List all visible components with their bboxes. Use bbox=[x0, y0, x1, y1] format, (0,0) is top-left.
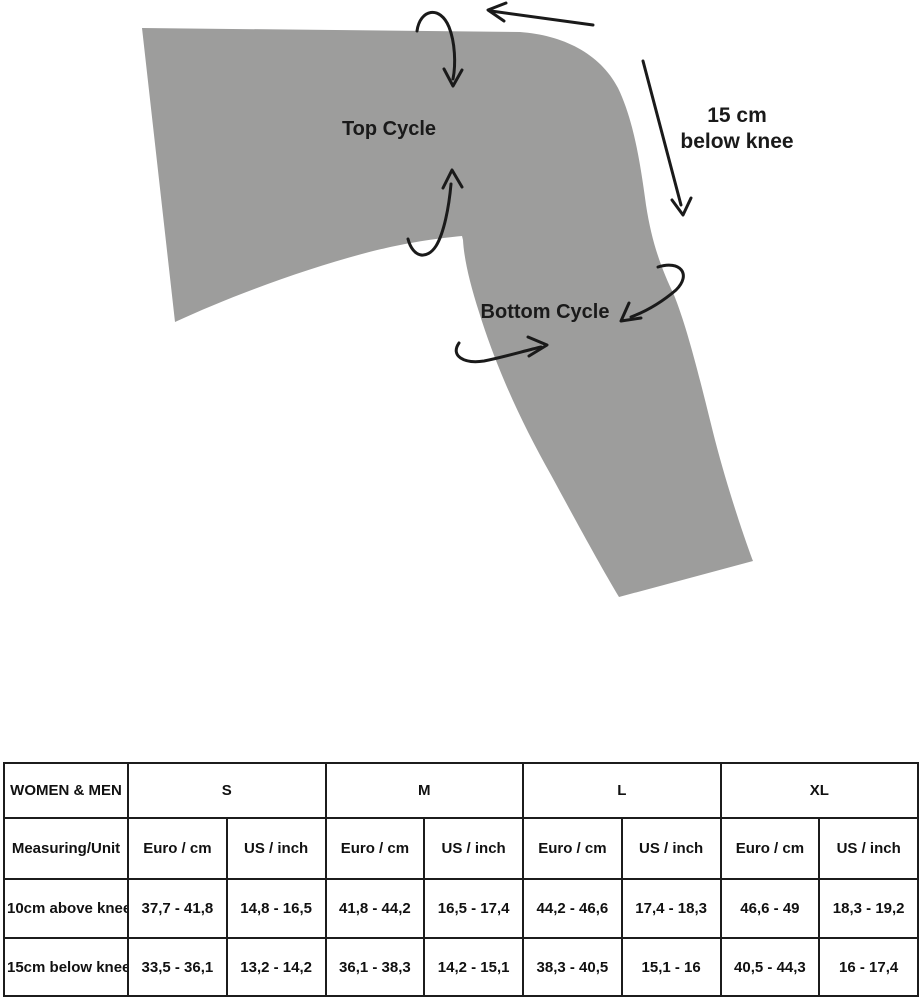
unit-cell-euro-cm: Euro / cm bbox=[128, 818, 227, 879]
value-cell: 16,5 - 17,4 bbox=[424, 879, 523, 938]
unit-cell-us-inch: US / inch bbox=[819, 818, 918, 879]
below-knee-note-line2: below knee bbox=[680, 130, 793, 153]
value-cell: 16 - 17,4 bbox=[819, 938, 918, 996]
value-cell: 17,4 - 18,3 bbox=[622, 879, 721, 938]
value-cell: 41,8 - 44,2 bbox=[326, 879, 425, 938]
unit-header-row: Measuring/Unit Euro / cm US / inch Euro … bbox=[4, 818, 918, 879]
thigh-direction-arrow bbox=[488, 3, 593, 25]
value-cell: 36,1 - 38,3 bbox=[326, 938, 425, 996]
table-row-above-knee: 10cm above knee 37,7 - 41,8 14,8 - 16,5 … bbox=[4, 879, 918, 938]
value-cell: 37,7 - 41,8 bbox=[128, 879, 227, 938]
row-label-below-knee: 15cm below knee bbox=[4, 938, 128, 996]
value-cell: 40,5 - 44,3 bbox=[721, 938, 820, 996]
value-cell: 46,6 - 49 bbox=[721, 879, 820, 938]
unit-cell-us-inch: US / inch bbox=[424, 818, 523, 879]
size-header-l: L bbox=[523, 763, 721, 818]
top-cycle-label: Top Cycle bbox=[342, 118, 436, 140]
unit-cell-euro-cm: Euro / cm bbox=[326, 818, 425, 879]
size-guide-page: Top Cycle Bottom Cycle 15 cm below knee … bbox=[0, 0, 920, 1000]
leg-silhouette bbox=[142, 28, 753, 597]
value-cell: 18,3 - 19,2 bbox=[819, 879, 918, 938]
size-header-m: M bbox=[326, 763, 524, 818]
value-cell: 13,2 - 14,2 bbox=[227, 938, 326, 996]
value-cell: 33,5 - 36,1 bbox=[128, 938, 227, 996]
size-chart-table: WOMEN & MEN S M L XL Measuring/Unit Euro… bbox=[3, 762, 919, 997]
below-knee-note-line1: 15 cm bbox=[707, 104, 767, 127]
bottom-cycle-label: Bottom Cycle bbox=[481, 301, 610, 323]
unit-cell-euro-cm: Euro / cm bbox=[523, 818, 622, 879]
value-cell: 15,1 - 16 bbox=[622, 938, 721, 996]
size-header-s: S bbox=[128, 763, 326, 818]
leg-diagram-svg: Top Cycle Bottom Cycle 15 cm below knee bbox=[0, 0, 920, 760]
value-cell: 38,3 - 40,5 bbox=[523, 938, 622, 996]
size-header-row: WOMEN & MEN S M L XL bbox=[4, 763, 918, 818]
unit-cell-euro-cm: Euro / cm bbox=[721, 818, 820, 879]
below-knee-note: 15 cm below knee bbox=[680, 104, 793, 153]
unit-cell-us-inch: US / inch bbox=[622, 818, 721, 879]
measuring-unit-header-cell: Measuring/Unit bbox=[4, 818, 128, 879]
leg-measurement-diagram: Top Cycle Bottom Cycle 15 cm below knee bbox=[0, 0, 920, 760]
corner-header-cell: WOMEN & MEN bbox=[4, 763, 128, 818]
value-cell: 14,2 - 15,1 bbox=[424, 938, 523, 996]
value-cell: 44,2 - 46,6 bbox=[523, 879, 622, 938]
unit-cell-us-inch: US / inch bbox=[227, 818, 326, 879]
size-header-xl: XL bbox=[721, 763, 919, 818]
table-row-below-knee: 15cm below knee 33,5 - 36,1 13,2 - 14,2 … bbox=[4, 938, 918, 996]
row-label-above-knee: 10cm above knee bbox=[4, 879, 128, 938]
value-cell: 14,8 - 16,5 bbox=[227, 879, 326, 938]
